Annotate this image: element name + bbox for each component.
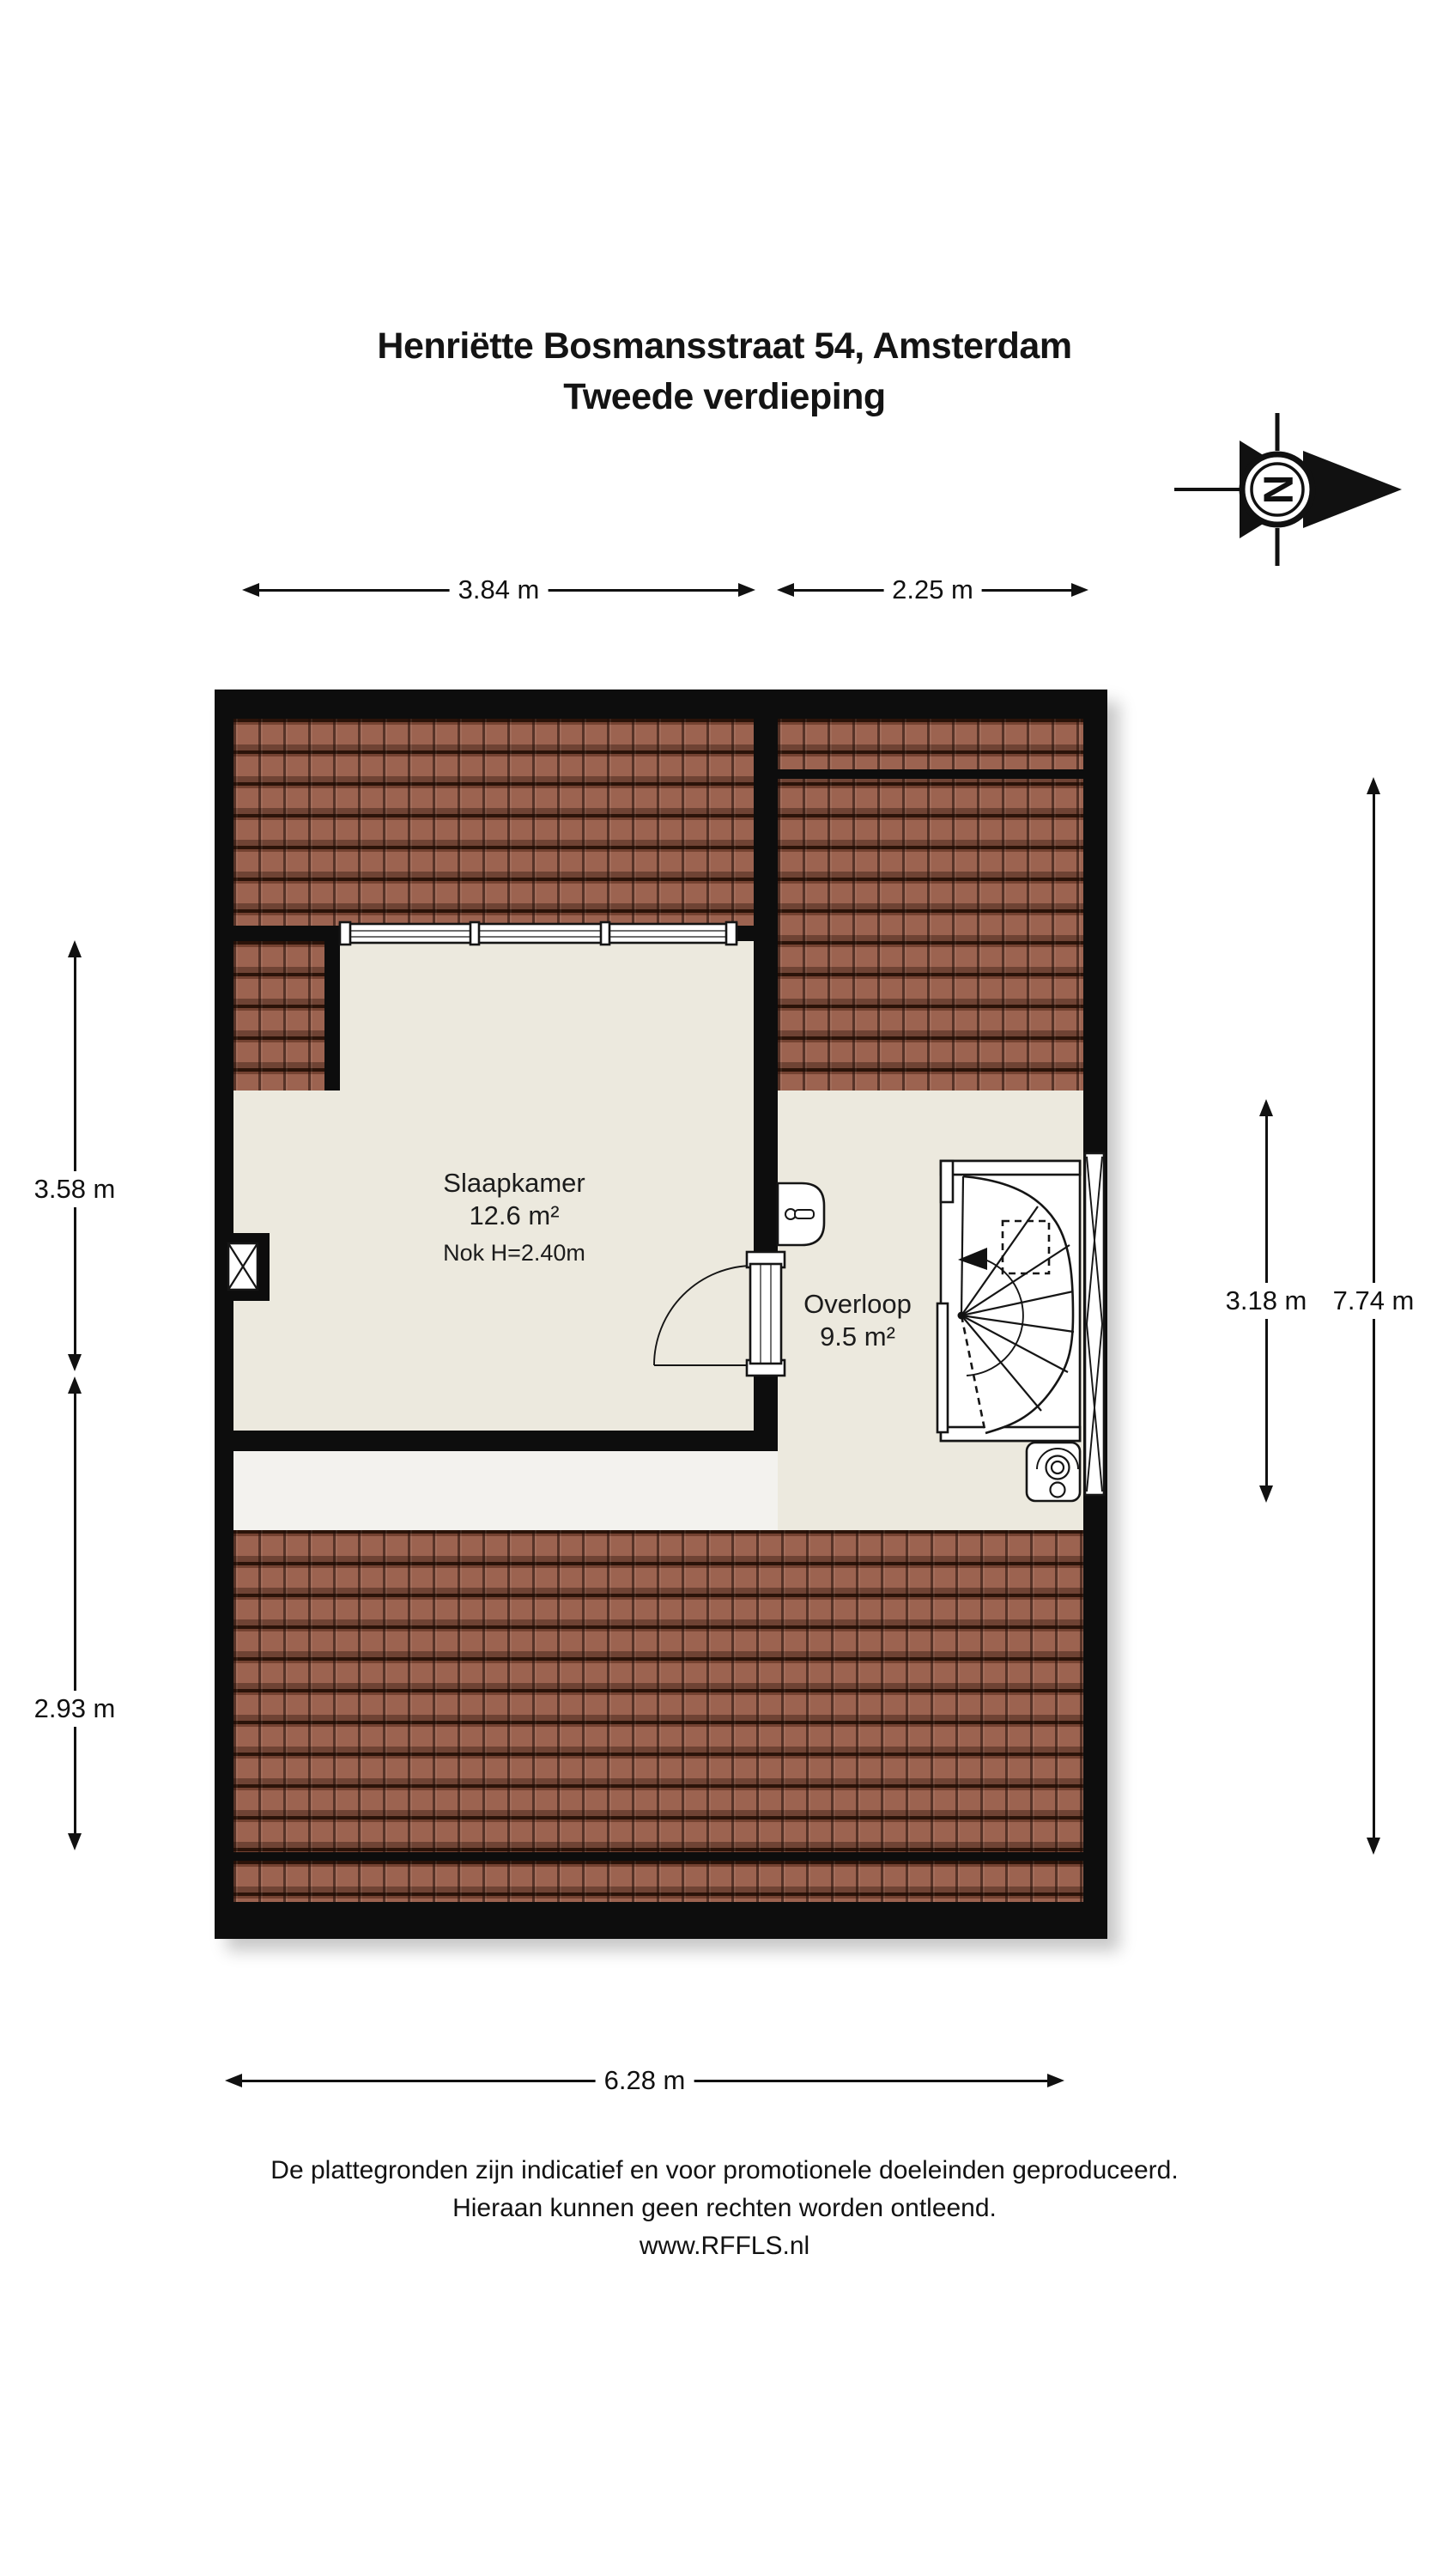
washbasin-icon — [778, 1183, 824, 1245]
plan-fixtures — [215, 690, 1107, 1939]
dim-bottom-label: 6.28 m — [596, 2063, 694, 2099]
boiler-icon — [1027, 1443, 1080, 1501]
room-note: Nok H=2.40m — [443, 1238, 585, 1267]
bedroom-window — [340, 922, 737, 945]
dim-line — [74, 954, 76, 1358]
disclaimer: De plattegronden zijn indicatief en voor… — [0, 2152, 1449, 2265]
chimney-flue-icon — [228, 1243, 258, 1290]
room-name: Slaapkamer — [443, 1167, 585, 1200]
disclaimer-line2: Hieraan kunnen geen rechten worden ontle… — [0, 2190, 1449, 2227]
room-area: 12.6 m² — [443, 1200, 585, 1232]
dim-top-right-label: 2.25 m — [883, 572, 982, 608]
room-area: 9.5 m² — [803, 1321, 912, 1353]
dim-right-inner-label: 3.18 m — [1217, 1283, 1316, 1319]
disclaimer-line1: De plattegronden zijn indicatief en voor… — [0, 2152, 1449, 2190]
north-arrow-icon: N — [1174, 408, 1432, 571]
room-name: Overloop — [803, 1288, 912, 1321]
website-url: www.RFFLS.nl — [0, 2227, 1449, 2265]
dim-line — [74, 1390, 76, 1837]
dim-left-lower-label: 2.93 m — [26, 1691, 124, 1727]
landing-label: Overloop 9.5 m² — [803, 1288, 912, 1353]
spiral-staircase — [937, 1161, 1080, 1441]
north-compass: N — [1174, 408, 1432, 571]
compass-letter: N — [1255, 475, 1300, 505]
dim-top-left-label: 3.84 m — [450, 572, 549, 608]
page-title-address: Henriëtte Bosmansstraat 54, Amsterdam — [0, 321, 1449, 372]
bedroom-label: Slaapkamer 12.6 m² Nok H=2.40m — [443, 1167, 585, 1267]
floor-plan: Slaapkamer 12.6 m² Nok H=2.40m Overloop … — [215, 690, 1107, 1939]
bedroom-door — [654, 1252, 785, 1376]
dim-right-outer-label: 7.74 m — [1325, 1283, 1423, 1319]
dim-left-upper-label: 3.58 m — [26, 1171, 124, 1207]
roof-window — [1085, 1153, 1104, 1495]
floorplan-page: Henriëtte Bosmansstraat 54, Amsterdam Tw… — [0, 0, 1449, 2576]
